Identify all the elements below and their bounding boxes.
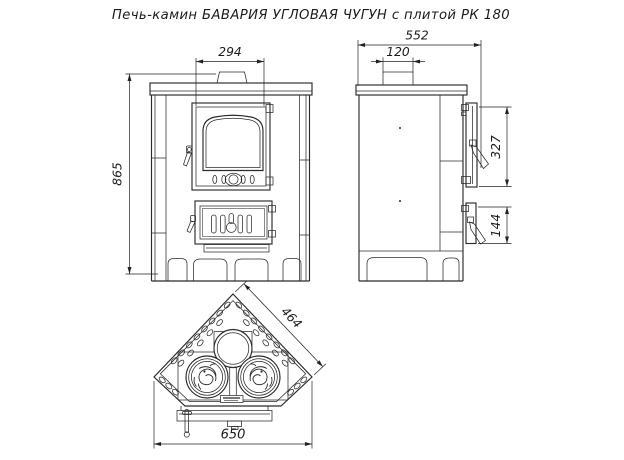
- upper-door-front: [184, 103, 274, 190]
- flue-stub-side: [383, 72, 413, 85]
- legs-side: [367, 258, 459, 282]
- brand-plate: [221, 396, 244, 403]
- lower-door-front: [187, 201, 276, 244]
- body-side: [359, 95, 463, 281]
- drawing-canvas: Печь-камин БАВАРИЯ УГЛОВАЯ ЧУГУН с плито…: [0, 0, 624, 460]
- top-view: 464 650: [154, 281, 326, 449]
- page-title: Печь-камин БАВАРИЯ УГЛОВАЯ ЧУГУН с плито…: [112, 8, 510, 23]
- door-glass-inner: [206, 118, 260, 167]
- technical-drawing-page: Печь-камин БАВАРИЯ УГЛОВАЯ ЧУГУН с плито…: [0, 0, 624, 460]
- upper-handle-lever: [471, 145, 489, 169]
- flue-stub-front: [217, 72, 247, 83]
- dim-label-327: 327: [489, 135, 503, 159]
- lower-handle-pivot: [468, 217, 474, 223]
- dim-flue-width: 120: [371, 45, 425, 73]
- side-view: 552 120 327 144: [356, 29, 512, 282]
- dim-label-144: 144: [489, 214, 503, 237]
- dim-label-552: 552: [405, 29, 429, 43]
- bolt-dot: [399, 127, 401, 129]
- lower-door-side: [462, 203, 486, 244]
- top-plate-front: [150, 83, 312, 95]
- body-front: [152, 95, 310, 281]
- dim-label-650: 650: [221, 428, 246, 443]
- burner-right: [238, 356, 280, 398]
- bolt-dot: [399, 200, 401, 202]
- burner-left: [186, 356, 228, 398]
- dim-front-width: 294: [196, 45, 264, 106]
- lower-door-handle: [187, 216, 196, 233]
- front-view: 294 865: [111, 45, 313, 281]
- dim-label-865: 865: [111, 162, 125, 186]
- air-vents-upper: [213, 173, 254, 186]
- air-slots-lower: [212, 214, 252, 234]
- legs-front: [168, 259, 301, 282]
- dim-upper-door: 327: [479, 107, 512, 187]
- door-glass-outer: [203, 115, 263, 170]
- top-plate-side: [356, 85, 467, 95]
- upper-door-side: [462, 103, 489, 187]
- ash-lip: [204, 245, 269, 253]
- dim-label-294: 294: [218, 45, 241, 59]
- dim-lower-door: 144: [478, 207, 512, 244]
- dim-label-464: 464: [278, 304, 304, 331]
- lower-handle-lever: [470, 222, 486, 244]
- dim-label-120: 120: [386, 45, 410, 59]
- upper-door-handle: [184, 146, 193, 166]
- latch-plan: [228, 421, 242, 427]
